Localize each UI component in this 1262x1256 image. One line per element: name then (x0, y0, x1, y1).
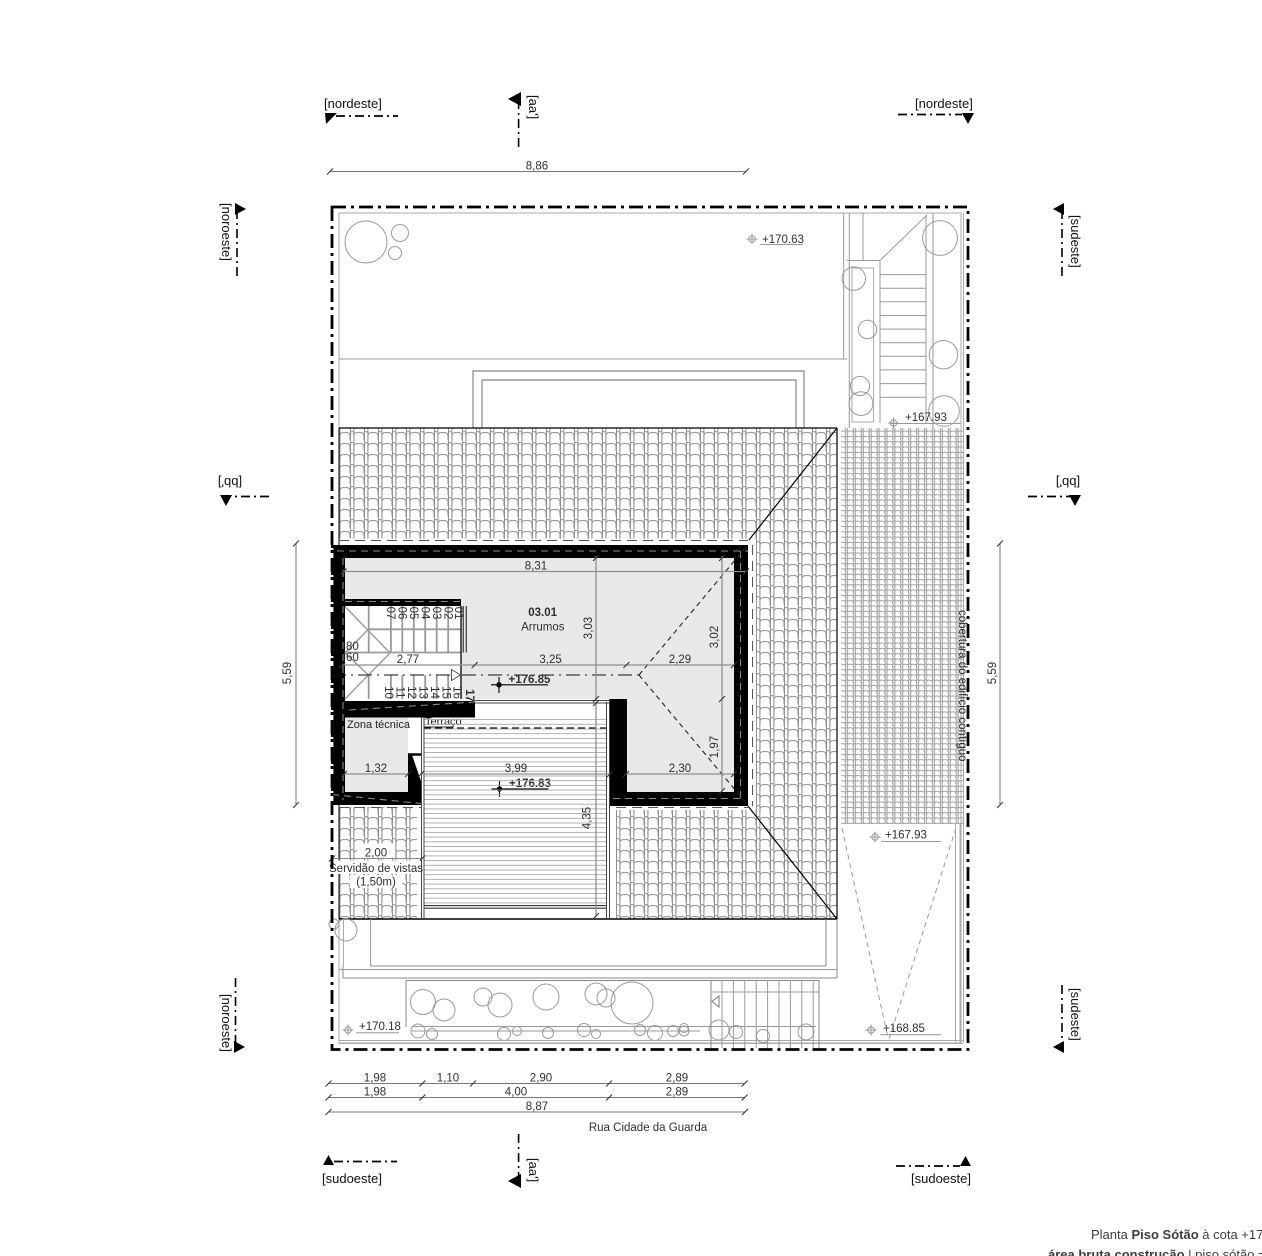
svg-text:cobertura do edifício contíguo: cobertura do edifício contíguo (956, 610, 968, 762)
svg-text:8,31: 8,31 (525, 561, 547, 573)
svg-text:2,29: 2,29 (669, 654, 691, 666)
svg-text:2,00: 2,00 (365, 848, 387, 860)
svg-text:[nordeste]: [nordeste] (915, 96, 973, 111)
svg-text:3,99: 3,99 (505, 763, 527, 775)
svg-text:Arrumos: Arrumos (521, 622, 565, 634)
svg-text:+170.18: +170.18 (359, 1021, 401, 1033)
svg-text:8,87: 8,87 (526, 1101, 548, 1113)
svg-text:01: 01 (452, 607, 464, 620)
svg-text:1,10: 1,10 (437, 1073, 459, 1085)
svg-text:16: 16 (451, 686, 463, 699)
svg-text:05: 05 (407, 607, 419, 620)
svg-text:Servidão de vistas: Servidão de vistas (329, 863, 423, 875)
svg-text:[sudoeste]: [sudoeste] (322, 1171, 382, 1186)
svg-text:[noroeste]: [noroeste] (219, 203, 234, 261)
svg-text:8,86: 8,86 (526, 161, 548, 173)
svg-text:Zona técnica: Zona técnica (347, 719, 411, 731)
svg-text:2,77: 2,77 (397, 654, 419, 666)
svg-text:área bruta construção | piso s: área bruta construção | piso sótão = 031 (1048, 1247, 1262, 1256)
svg-text:5,59: 5,59 (282, 662, 294, 684)
svg-text:1,98: 1,98 (364, 1087, 386, 1099)
svg-text:3,03: 3,03 (583, 617, 595, 639)
svg-text:Planta Piso Sótão à cota +178.: Planta Piso Sótão à cota +178.30 (1091, 1227, 1262, 1242)
svg-text:Rua Cidade da Guarda: Rua Cidade da Guarda (589, 1122, 708, 1134)
svg-text:2,89: 2,89 (666, 1087, 688, 1099)
svg-text:02: 02 (441, 607, 453, 620)
svg-text:[sudeste]: [sudeste] (1068, 215, 1083, 268)
svg-text:[sudoeste]: [sudoeste] (911, 1171, 971, 1186)
svg-text:5,59: 5,59 (987, 662, 999, 684)
svg-text:[nordeste]: [nordeste] (324, 96, 382, 111)
svg-text:[bb']: [bb'] (1056, 475, 1080, 490)
svg-text:2,89: 2,89 (666, 1073, 688, 1085)
svg-text:[bb']: [bb'] (218, 475, 242, 490)
svg-text:4,00: 4,00 (505, 1087, 527, 1099)
svg-text:17: 17 (463, 689, 475, 702)
svg-text:(1,50m): (1,50m) (356, 877, 396, 889)
svg-text:1,98: 1,98 (364, 1073, 386, 1085)
svg-text:15: 15 (439, 686, 451, 699)
svg-text:+168.85: +168.85 (883, 1023, 925, 1035)
svg-text:04: 04 (418, 607, 430, 620)
svg-text:03.01: 03.01 (528, 607, 557, 619)
svg-text:[noroeste]: [noroeste] (219, 994, 234, 1052)
svg-text:3,02: 3,02 (709, 626, 721, 648)
svg-text:[sudeste]: [sudeste] (1068, 988, 1083, 1041)
svg-text:12: 12 (405, 686, 417, 699)
svg-text:03: 03 (430, 607, 442, 620)
svg-text:+167.93: +167.93 (885, 830, 927, 842)
svg-text:2,90: 2,90 (530, 1073, 552, 1085)
svg-text:+167.93: +167.93 (905, 412, 947, 424)
svg-text:4,35: 4,35 (582, 807, 594, 829)
svg-text:3,25: 3,25 (539, 654, 561, 666)
svg-text:1,32: 1,32 (365, 763, 387, 775)
svg-text:11: 11 (394, 687, 406, 699)
svg-text:1,97: 1,97 (709, 736, 721, 758)
svg-text:13: 13 (416, 686, 428, 699)
svg-text:2,30: 2,30 (669, 763, 691, 775)
svg-text:[aa']: [aa'] (526, 1158, 541, 1182)
svg-text:[aa']: [aa'] (526, 95, 541, 119)
svg-text:07: 07 (384, 607, 396, 620)
svg-text:14: 14 (428, 686, 440, 699)
svg-text:60: 60 (346, 652, 359, 664)
svg-text:06: 06 (396, 607, 408, 620)
svg-text:10: 10 (382, 686, 394, 699)
